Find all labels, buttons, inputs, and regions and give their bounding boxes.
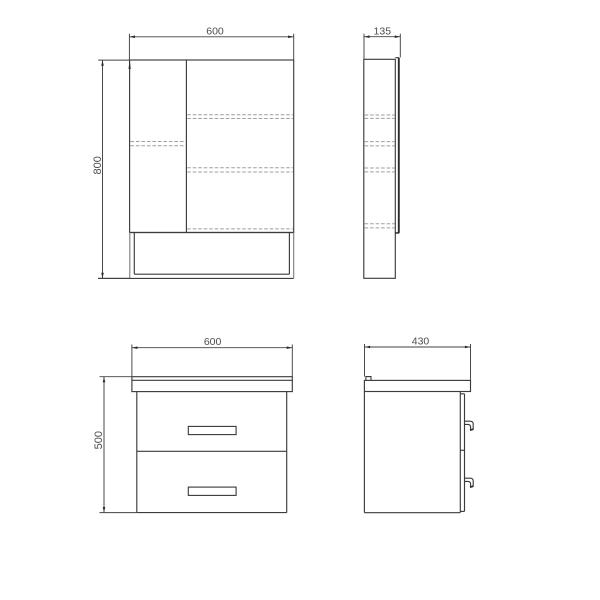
svg-text:600: 600 [204,336,222,348]
svg-text:500: 500 [93,431,105,449]
svg-text:600: 600 [206,25,224,37]
svg-text:135: 135 [374,26,392,38]
svg-text:800: 800 [92,156,104,174]
svg-text:430: 430 [412,336,430,348]
